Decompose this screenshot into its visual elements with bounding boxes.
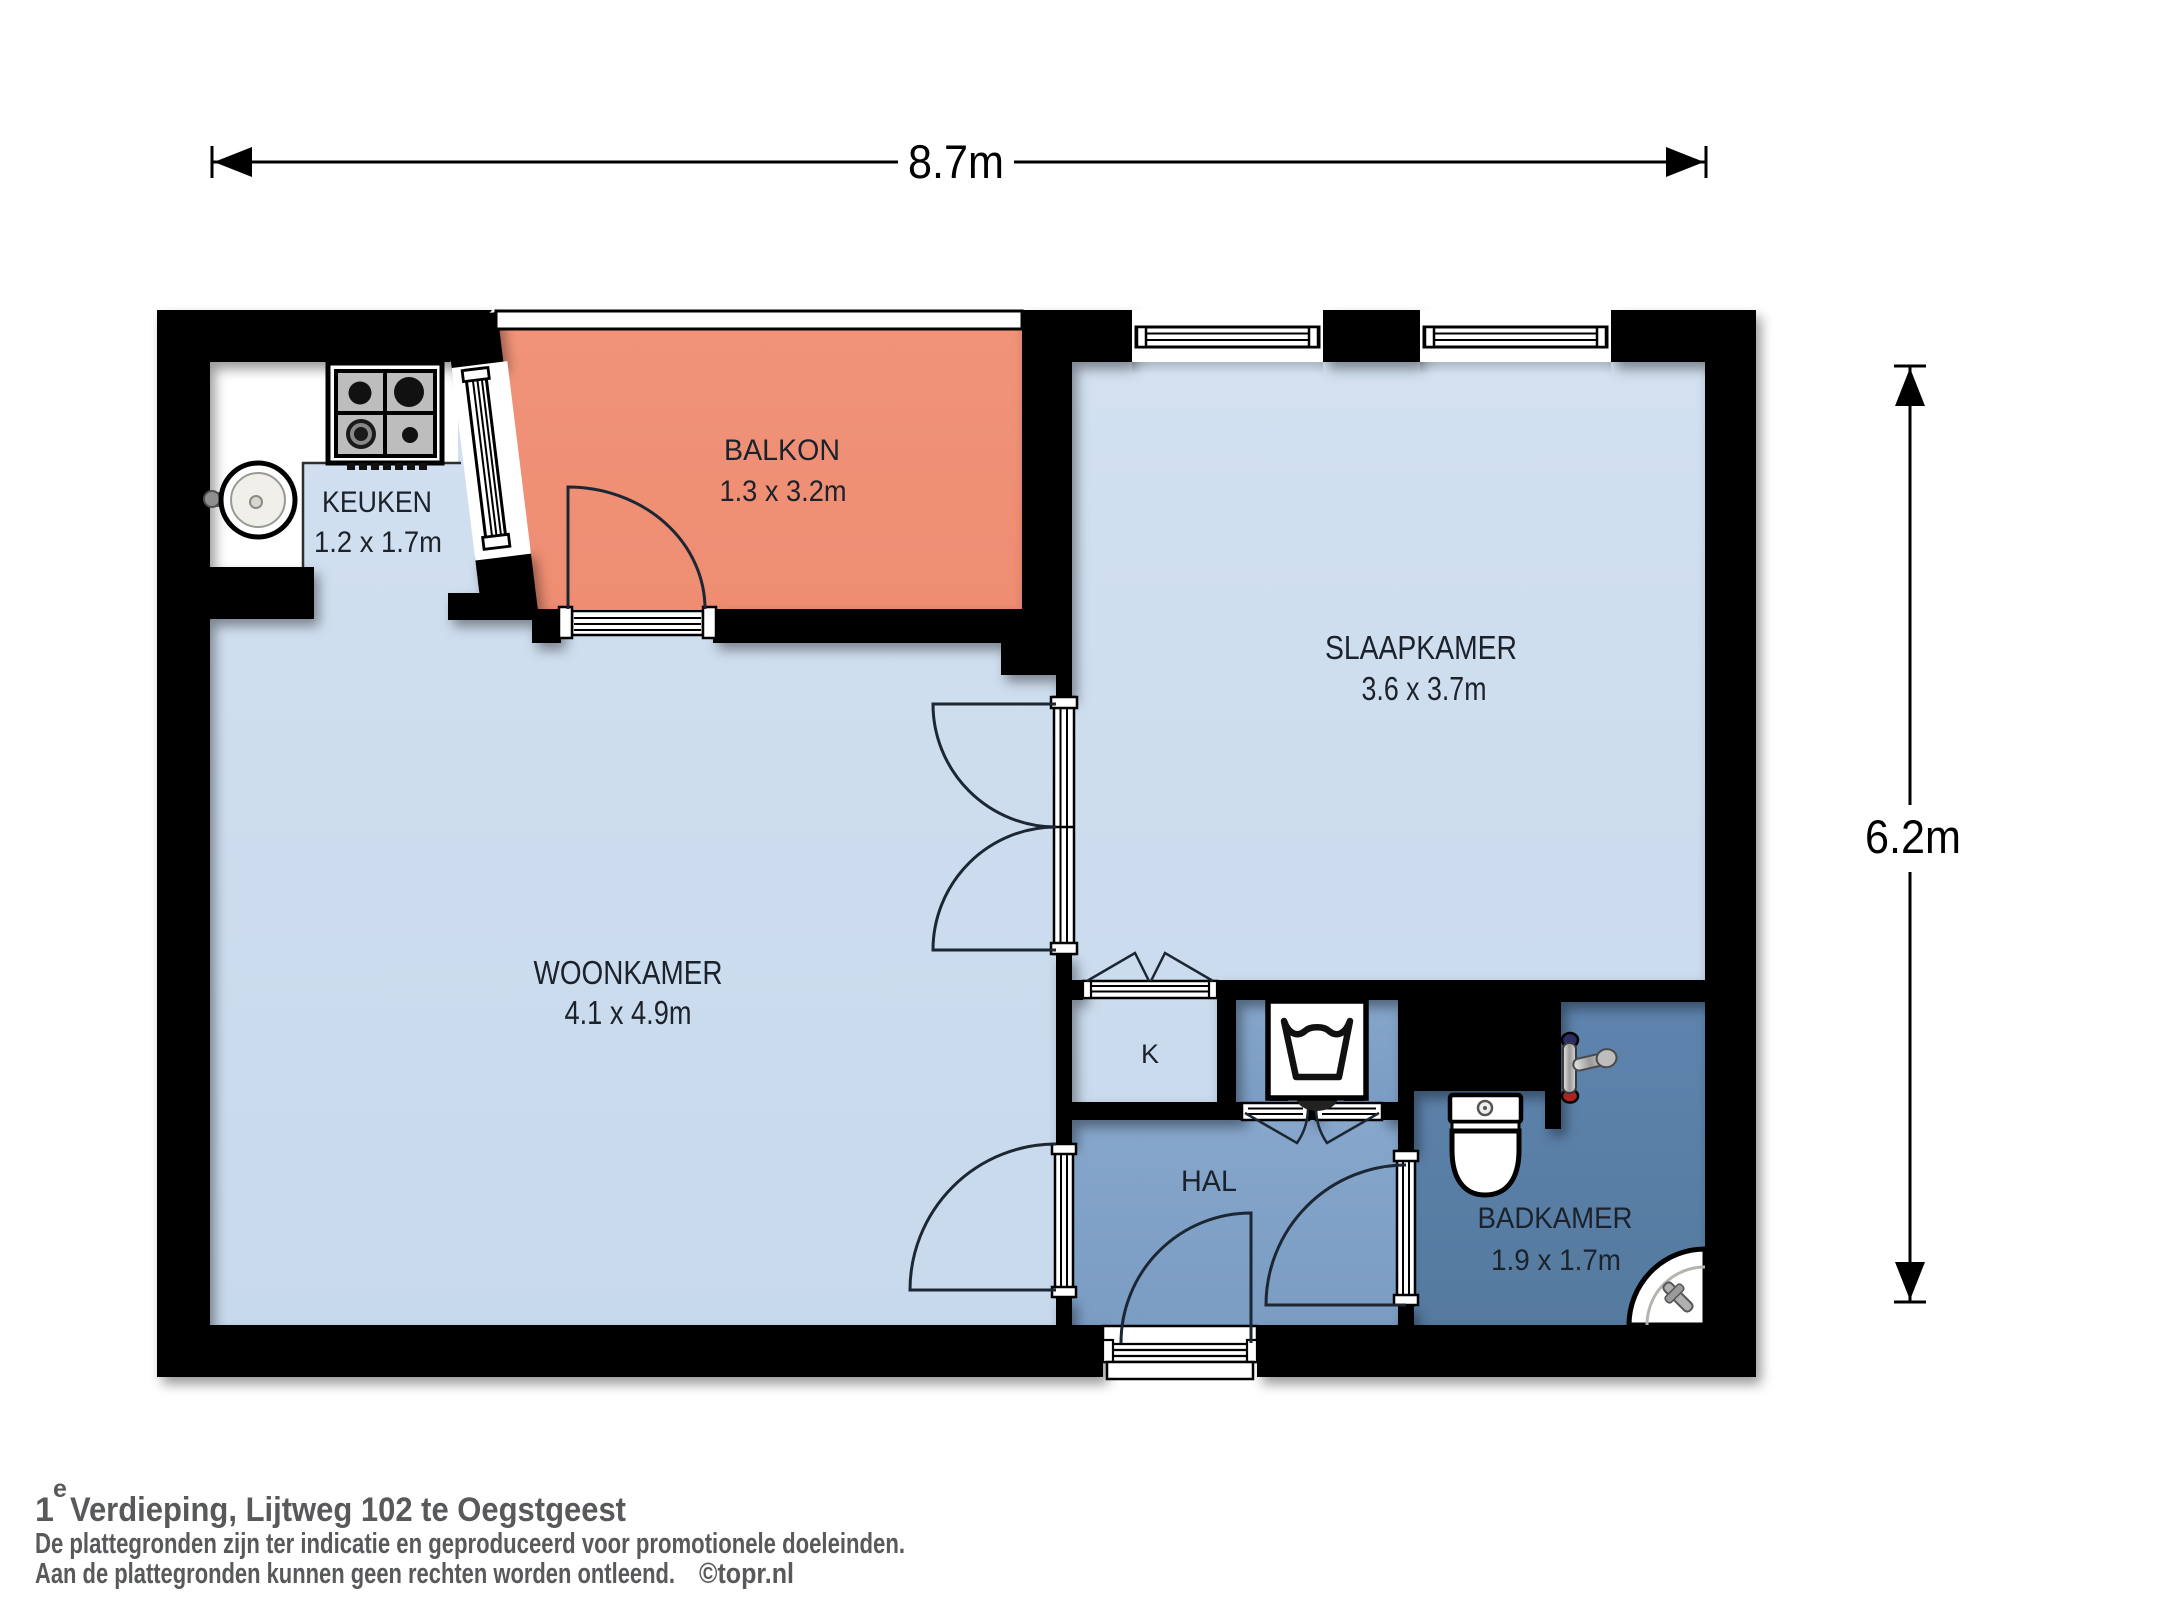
svg-text:Verdieping, Lijtweg 102 te Oeg: Verdieping, Lijtweg 102 te Oegstgeest bbox=[70, 1491, 626, 1529]
svg-text:1.3 x 3.2m: 1.3 x 3.2m bbox=[720, 475, 847, 508]
svg-text:Aan de plattegronden kunnen ge: Aan de plattegronden kunnen geen rechten… bbox=[35, 1558, 675, 1590]
svg-text:BALKON: BALKON bbox=[724, 434, 840, 467]
svg-text:6.2m: 6.2m bbox=[1865, 810, 1961, 863]
svg-text:4.1 x 4.9m: 4.1 x 4.9m bbox=[565, 994, 692, 1031]
svg-text:3.6 x 3.7m: 3.6 x 3.7m bbox=[1362, 670, 1487, 707]
svg-text:KEUKEN: KEUKEN bbox=[322, 486, 432, 519]
svg-text:1.2 x 1.7m: 1.2 x 1.7m bbox=[314, 526, 442, 559]
svg-text:8.7m: 8.7m bbox=[908, 135, 1004, 188]
svg-text:BADKAMER: BADKAMER bbox=[1478, 1202, 1633, 1235]
svg-text:SLAAPKAMER: SLAAPKAMER bbox=[1325, 629, 1517, 666]
svg-text:K: K bbox=[1141, 1039, 1159, 1069]
svg-text:1: 1 bbox=[35, 1491, 54, 1529]
svg-text:©topr.nl: ©topr.nl bbox=[699, 1558, 794, 1590]
svg-text:WOONKAMER: WOONKAMER bbox=[534, 954, 723, 991]
svg-text:De plattegronden zijn ter indi: De plattegronden zijn ter indicatie en g… bbox=[35, 1528, 905, 1560]
svg-text:HAL: HAL bbox=[1181, 1165, 1237, 1198]
svg-text:e: e bbox=[53, 1475, 67, 1503]
svg-text:1.9 x 1.7m: 1.9 x 1.7m bbox=[1491, 1244, 1621, 1277]
